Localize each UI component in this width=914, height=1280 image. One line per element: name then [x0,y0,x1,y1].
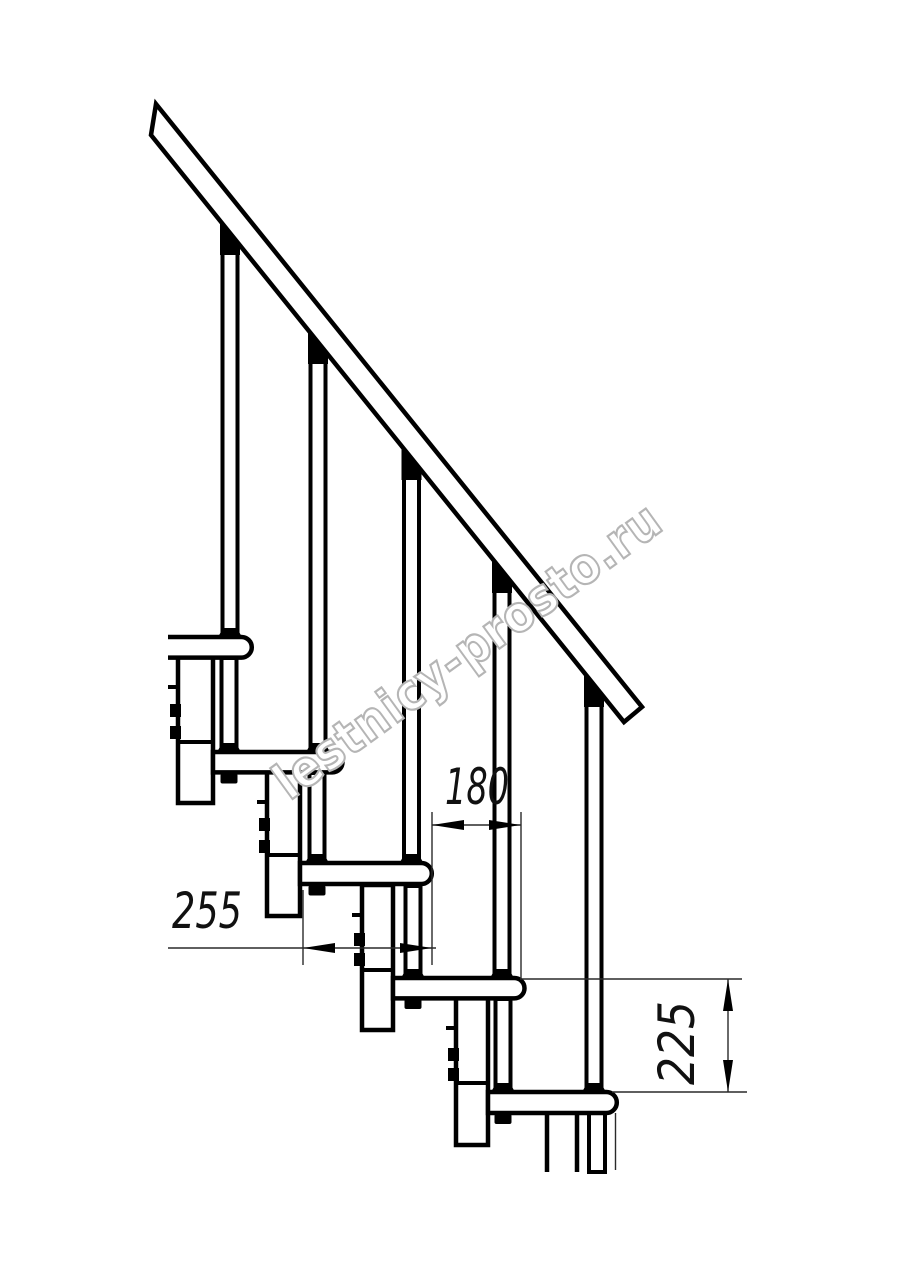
module-clip [448,1048,459,1061]
baluster [311,350,326,752]
tread [168,637,252,658]
dim-label-step-rise: 225 [648,1001,706,1085]
module-clip [170,704,181,717]
tread-nut [221,774,238,784]
arrowhead-left [303,943,335,953]
tread-nut [495,1114,512,1124]
tread-nut [309,886,326,896]
baluster [223,240,238,637]
module-clip [259,840,270,853]
support-module-cut [547,1113,577,1172]
baluster [587,692,602,1092]
stair-drawing-page: 180 255 225 lestnicy-prosto.ru [0,0,914,1280]
support-module [168,657,213,803]
tread [393,978,525,998]
arrowhead-up [723,979,733,1011]
tread [488,1092,617,1113]
module-clip [448,1068,459,1081]
strut [222,658,237,748]
module-clip [354,933,365,946]
arrowhead-down [723,1060,733,1092]
strut [589,1113,605,1172]
module-clip [259,818,270,831]
dim-label-tread-depth: 255 [172,882,242,940]
dimension-step-rise: 225 [520,979,747,1092]
arrowhead-left [432,820,464,830]
module-clip [354,953,365,966]
stair-drawing: 180 255 225 lestnicy-prosto.ru [0,0,914,1280]
support-module [352,885,393,1030]
module-clip [170,726,181,739]
dim-label-step-run: 180 [445,758,509,816]
strut [406,886,421,973]
support-module [446,998,488,1145]
strut [496,999,511,1087]
tread-nut [405,999,422,1009]
tread [300,863,432,884]
